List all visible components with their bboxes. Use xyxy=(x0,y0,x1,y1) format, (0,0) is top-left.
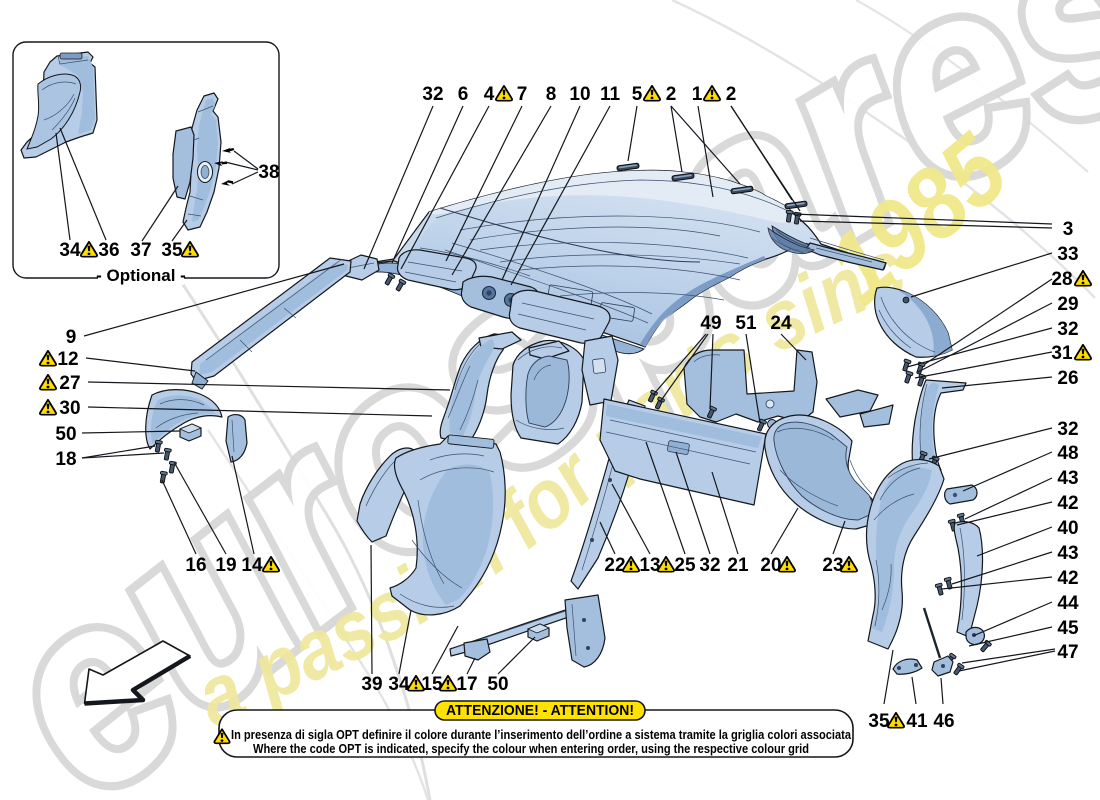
svg-text:22: 22 xyxy=(604,555,625,576)
svg-text:31: 31 xyxy=(1051,343,1073,364)
svg-text:35: 35 xyxy=(161,240,183,261)
svg-text:18: 18 xyxy=(55,449,76,470)
svg-text:28: 28 xyxy=(1051,269,1072,290)
svg-text:1: 1 xyxy=(692,84,703,105)
svg-text:40: 40 xyxy=(1057,518,1078,539)
svg-text:9: 9 xyxy=(66,327,77,348)
svg-text:43: 43 xyxy=(1057,468,1078,489)
svg-text:4: 4 xyxy=(484,84,495,105)
svg-text:30: 30 xyxy=(59,398,80,419)
svg-text:36: 36 xyxy=(98,240,119,261)
svg-text:ATTENZIONE! - ATTENTION!: ATTENZIONE! - ATTENTION! xyxy=(446,702,634,719)
svg-text:15: 15 xyxy=(421,674,443,695)
svg-text:12: 12 xyxy=(57,349,78,370)
svg-text:33: 33 xyxy=(1057,244,1078,265)
svg-text:26: 26 xyxy=(1057,368,1078,389)
svg-text:42: 42 xyxy=(1057,568,1078,589)
svg-text:29: 29 xyxy=(1057,294,1078,315)
svg-text:44: 44 xyxy=(1057,593,1079,614)
svg-text:37: 37 xyxy=(130,240,151,261)
svg-text:5: 5 xyxy=(632,84,643,105)
svg-text:2: 2 xyxy=(666,84,677,105)
svg-text:27: 27 xyxy=(59,373,80,394)
svg-text:42: 42 xyxy=(1057,493,1078,514)
svg-text:32: 32 xyxy=(1057,319,1078,340)
svg-text:3: 3 xyxy=(1063,219,1074,240)
svg-text:7: 7 xyxy=(517,84,528,105)
svg-text:39: 39 xyxy=(361,674,382,695)
svg-text:45: 45 xyxy=(1057,618,1079,639)
svg-text:41: 41 xyxy=(906,711,928,732)
svg-text:13: 13 xyxy=(639,555,660,576)
svg-text:50: 50 xyxy=(55,424,76,445)
svg-text:32: 32 xyxy=(422,84,443,105)
svg-text:- Optional -: - Optional - xyxy=(96,266,186,285)
svg-text:20: 20 xyxy=(760,555,781,576)
svg-text:48: 48 xyxy=(1057,443,1078,464)
svg-text:24: 24 xyxy=(770,313,792,334)
svg-text:10: 10 xyxy=(569,84,590,105)
svg-text:6: 6 xyxy=(458,84,469,105)
svg-text:32: 32 xyxy=(1057,419,1078,440)
svg-text:16: 16 xyxy=(185,555,206,576)
svg-text:In presenza di sigla OPT defin: In presenza di sigla OPT definire il col… xyxy=(231,728,852,742)
svg-text:8: 8 xyxy=(546,84,557,105)
svg-text:21: 21 xyxy=(727,555,749,576)
svg-text:46: 46 xyxy=(933,711,954,732)
svg-text:17: 17 xyxy=(456,674,477,695)
svg-text:34: 34 xyxy=(388,674,410,695)
svg-text:47: 47 xyxy=(1057,642,1078,663)
svg-text:11: 11 xyxy=(600,84,621,105)
svg-text:38: 38 xyxy=(258,162,279,183)
svg-text:32: 32 xyxy=(699,555,720,576)
svg-text:50: 50 xyxy=(487,674,508,695)
svg-text:19: 19 xyxy=(215,555,236,576)
svg-text:49: 49 xyxy=(700,313,721,334)
svg-text:14: 14 xyxy=(241,555,263,576)
svg-text:23: 23 xyxy=(822,555,843,576)
svg-text:35: 35 xyxy=(868,711,890,732)
svg-text:Where the code OPT is indicate: Where the code OPT is indicated, specify… xyxy=(253,742,809,756)
svg-text:34: 34 xyxy=(59,240,81,261)
svg-text:43: 43 xyxy=(1057,543,1078,564)
svg-text:51: 51 xyxy=(735,313,757,334)
svg-text:2: 2 xyxy=(726,84,737,105)
svg-text:25: 25 xyxy=(674,555,696,576)
